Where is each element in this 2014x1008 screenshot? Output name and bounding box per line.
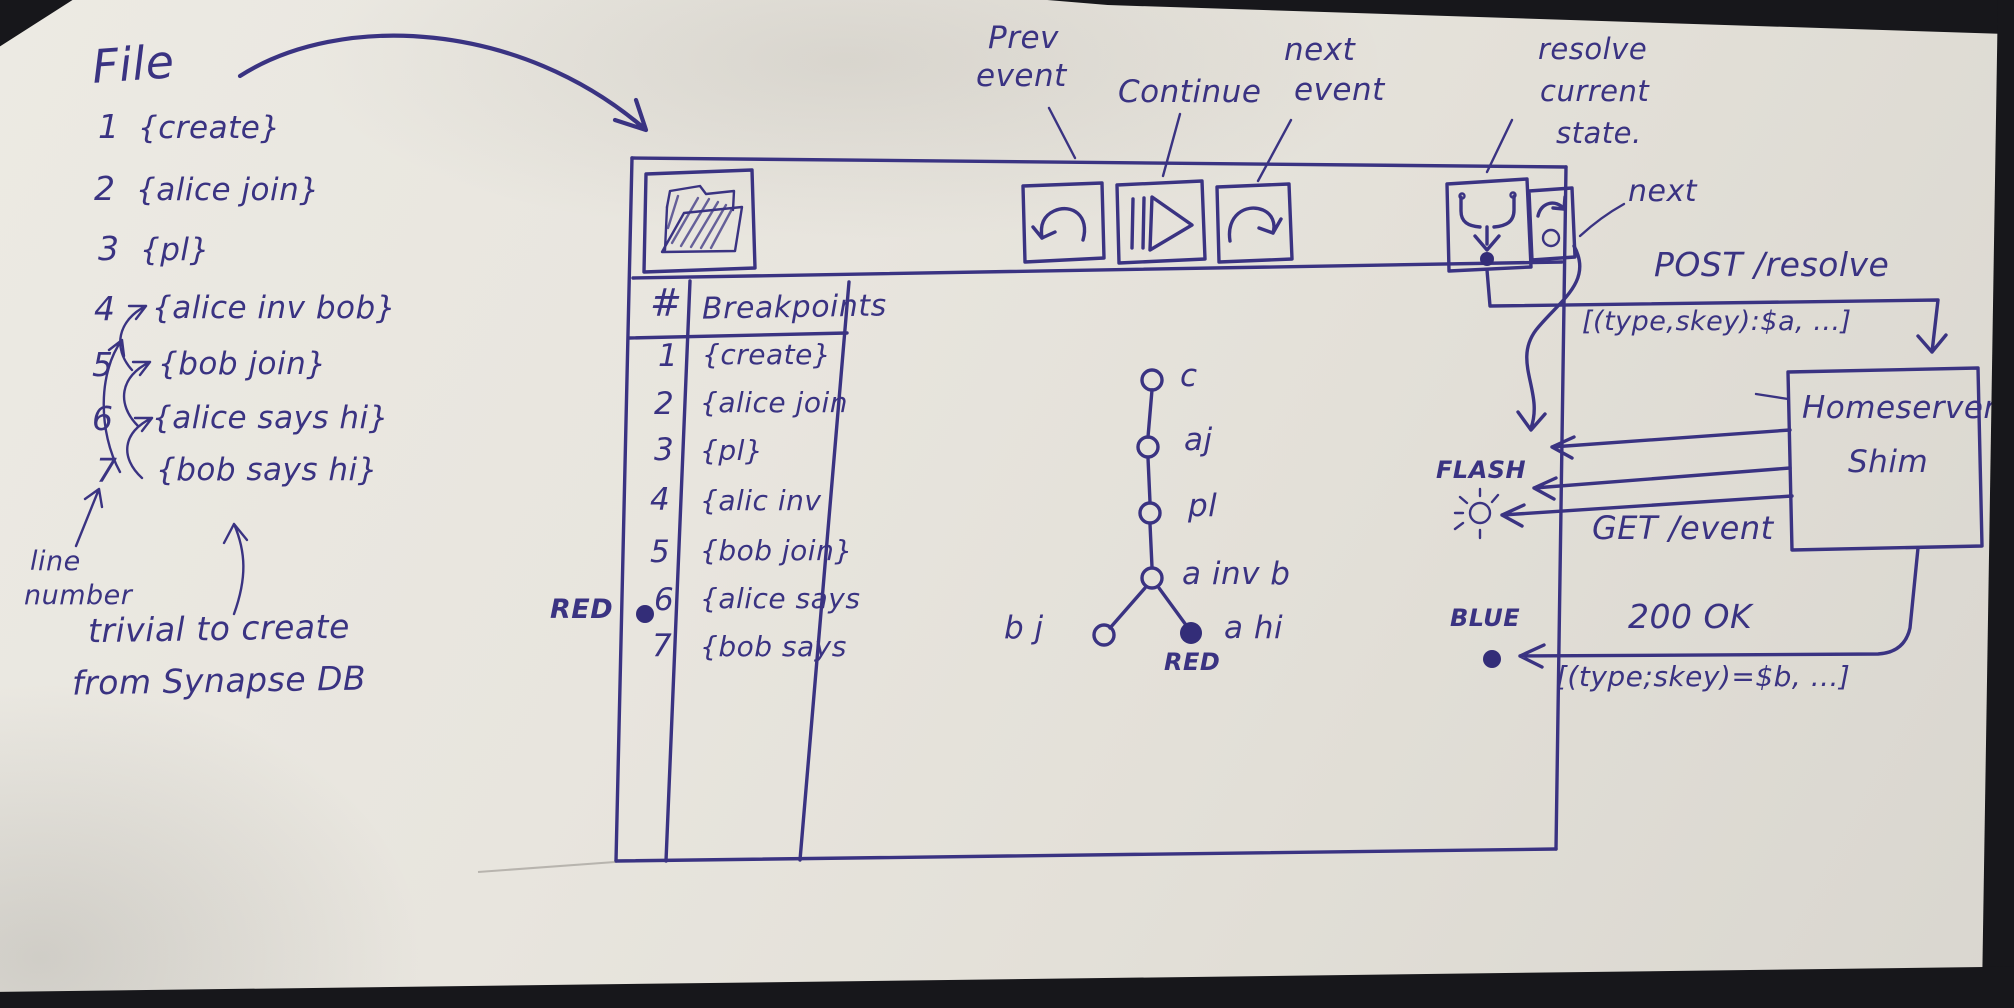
dag-node-label: c <box>1180 360 1198 393</box>
edge-c-aj <box>1148 390 1152 437</box>
file-line-text[interactable]: {create} <box>138 112 281 145</box>
shim-return-arrow-2 <box>1534 468 1790 499</box>
next-hook-icon <box>1538 197 1565 246</box>
node-bob-join[interactable] <box>1094 625 1114 645</box>
node-power-levels[interactable] <box>1140 503 1160 523</box>
flash-note: FLASH <box>1436 458 1526 483</box>
next-event-pointer-line <box>1258 120 1291 181</box>
window-right-border <box>1556 167 1566 849</box>
synapse-note: from Synapse DB <box>72 661 367 701</box>
photographed-sketch: File 1 {create} 2 {alice join} 3 {pl} 4 … <box>0 0 2014 1008</box>
red-breakpoint-note: RED <box>550 596 613 624</box>
next-pointer-line <box>1580 204 1624 236</box>
edge-inv-bj <box>1110 588 1145 628</box>
synapse-note: trivial to create <box>88 610 350 649</box>
event-dag <box>1094 370 1202 645</box>
undo-arrow-icon <box>1033 209 1085 240</box>
bp-row-text[interactable]: {bob join} <box>700 536 853 565</box>
post-payload-label: [(type,skey):$a, ...] <box>1582 308 1852 336</box>
bp-row-num[interactable]: 1 <box>658 340 678 373</box>
file-line-number: 4 <box>94 292 116 327</box>
dag-node-label: pl <box>1188 490 1217 523</box>
continue-pointer-line <box>1163 114 1180 176</box>
prev-event-button[interactable] <box>1023 183 1104 262</box>
next-event-annotation: event <box>1294 74 1385 107</box>
bp-row-text[interactable]: {alice says <box>700 584 860 613</box>
file-line-text[interactable]: {alice says hi} <box>152 402 389 435</box>
blue-event-dot <box>1483 650 1501 668</box>
file-line-number: 6 <box>92 402 114 437</box>
prev-pointer-line <box>1049 108 1075 158</box>
bp-row-num[interactable]: 4 <box>650 484 670 517</box>
file-line-text[interactable]: {alice inv bob} <box>152 292 396 325</box>
merge-state-icon <box>1460 193 1516 267</box>
node-alice-join[interactable] <box>1138 437 1158 457</box>
window-top-border <box>632 158 1566 167</box>
file-line-number: 7 <box>96 454 118 489</box>
dag-node-label: a inv b <box>1182 558 1291 591</box>
ok-payload-label: [(type;skey)=$b, ...] <box>1556 662 1850 691</box>
next-flow-curve-arrow <box>1518 246 1580 430</box>
pencil-line <box>478 862 615 872</box>
ink-strokes <box>0 0 2014 1008</box>
bp-row-num[interactable]: 5 <box>650 536 670 569</box>
dag-node-label: b j <box>1004 612 1044 645</box>
bp-row-num[interactable]: 6 <box>654 584 674 617</box>
edge-inv-ahi <box>1159 588 1186 625</box>
resolve-state-button[interactable] <box>1447 179 1531 271</box>
play-pause-icon <box>1132 197 1192 250</box>
resolve-pointer-line <box>1487 120 1512 172</box>
file-line-number: 1 <box>98 110 120 145</box>
node-alice-hi-red[interactable] <box>1180 622 1202 644</box>
dag-node-label: aj <box>1184 424 1213 457</box>
prev-event-annotation: Prev <box>988 22 1059 55</box>
file-to-window-arrow <box>240 36 646 130</box>
flash-indicator <box>1455 489 1498 538</box>
table-header-breakpoints: Breakpoints <box>702 290 887 325</box>
get-event-label: GET /event <box>1592 512 1774 546</box>
blue-note: BLUE <box>1450 606 1520 631</box>
file-line-number: 5 <box>92 348 114 383</box>
prev-event-annotation: event <box>976 60 1067 93</box>
bp-row-num[interactable]: 2 <box>654 388 674 421</box>
line-number-note: number <box>24 582 132 610</box>
ok-status-label: 200 OK <box>1628 600 1752 635</box>
edge-pl-inv <box>1150 524 1152 567</box>
shim-stub-line <box>1756 394 1788 399</box>
file-line-text[interactable]: {alice join} <box>136 174 319 207</box>
bp-row-text[interactable]: {create} <box>702 340 831 369</box>
node-create[interactable] <box>1142 370 1162 390</box>
resolve-annotation: state. <box>1556 118 1642 148</box>
continue-button[interactable] <box>1117 181 1205 263</box>
line-number-arrow <box>76 489 102 546</box>
bp-row-text[interactable]: {pl} <box>700 436 763 465</box>
homeserver-shim-title: Shim <box>1848 446 1928 479</box>
toolbar-bottom-border <box>633 262 1562 278</box>
next-small-button[interactable] <box>1529 188 1575 260</box>
bp-row-num[interactable]: 7 <box>652 630 672 663</box>
red-node-note: RED <box>1164 650 1220 675</box>
edge-aj-pl <box>1148 458 1150 502</box>
bp-row-num[interactable]: 3 <box>654 434 674 467</box>
synapse-note-arrow <box>224 524 247 614</box>
window-bottom-border <box>616 849 1556 861</box>
table-header-num: # <box>650 284 682 324</box>
file-panel-title: File <box>90 37 175 91</box>
file-line-text[interactable]: {bob join} <box>158 348 326 381</box>
debugger-window <box>478 158 1566 872</box>
file-line-number: 2 <box>94 172 116 207</box>
shim-return-arrow-1 <box>1552 430 1790 458</box>
bp-row-text[interactable]: {bob says <box>700 632 847 661</box>
open-folder-icon <box>662 186 742 252</box>
next-event-button[interactable] <box>1217 184 1292 262</box>
file-line-text[interactable]: {bob says hi} <box>156 454 378 487</box>
resolve-annotation: resolve <box>1538 34 1647 64</box>
node-alice-inv-bob[interactable] <box>1142 568 1162 588</box>
file-line-number: 3 <box>98 232 120 267</box>
continue-annotation: Continue <box>1118 76 1261 109</box>
file-line-text[interactable]: {pl} <box>140 234 210 267</box>
open-file-button[interactable] <box>644 170 755 272</box>
next-event-annotation: next <box>1284 34 1355 67</box>
breakpoint-dot-row6[interactable] <box>636 605 654 623</box>
homeserver-shim-title: Homeserver <box>1802 392 1997 425</box>
window-left-border <box>616 158 632 861</box>
bp-row-text[interactable]: {alic inv <box>700 486 821 515</box>
next-button-annotation: next <box>1628 176 1697 208</box>
line-number-note: line <box>30 548 81 576</box>
dag-node-label: a hi <box>1224 612 1283 645</box>
resolve-annotation: current <box>1540 76 1649 106</box>
bp-row-text[interactable]: {alice join <box>700 388 848 417</box>
redo-arrow-icon <box>1229 208 1281 241</box>
post-resolve-label: POST /resolve <box>1654 248 1889 283</box>
